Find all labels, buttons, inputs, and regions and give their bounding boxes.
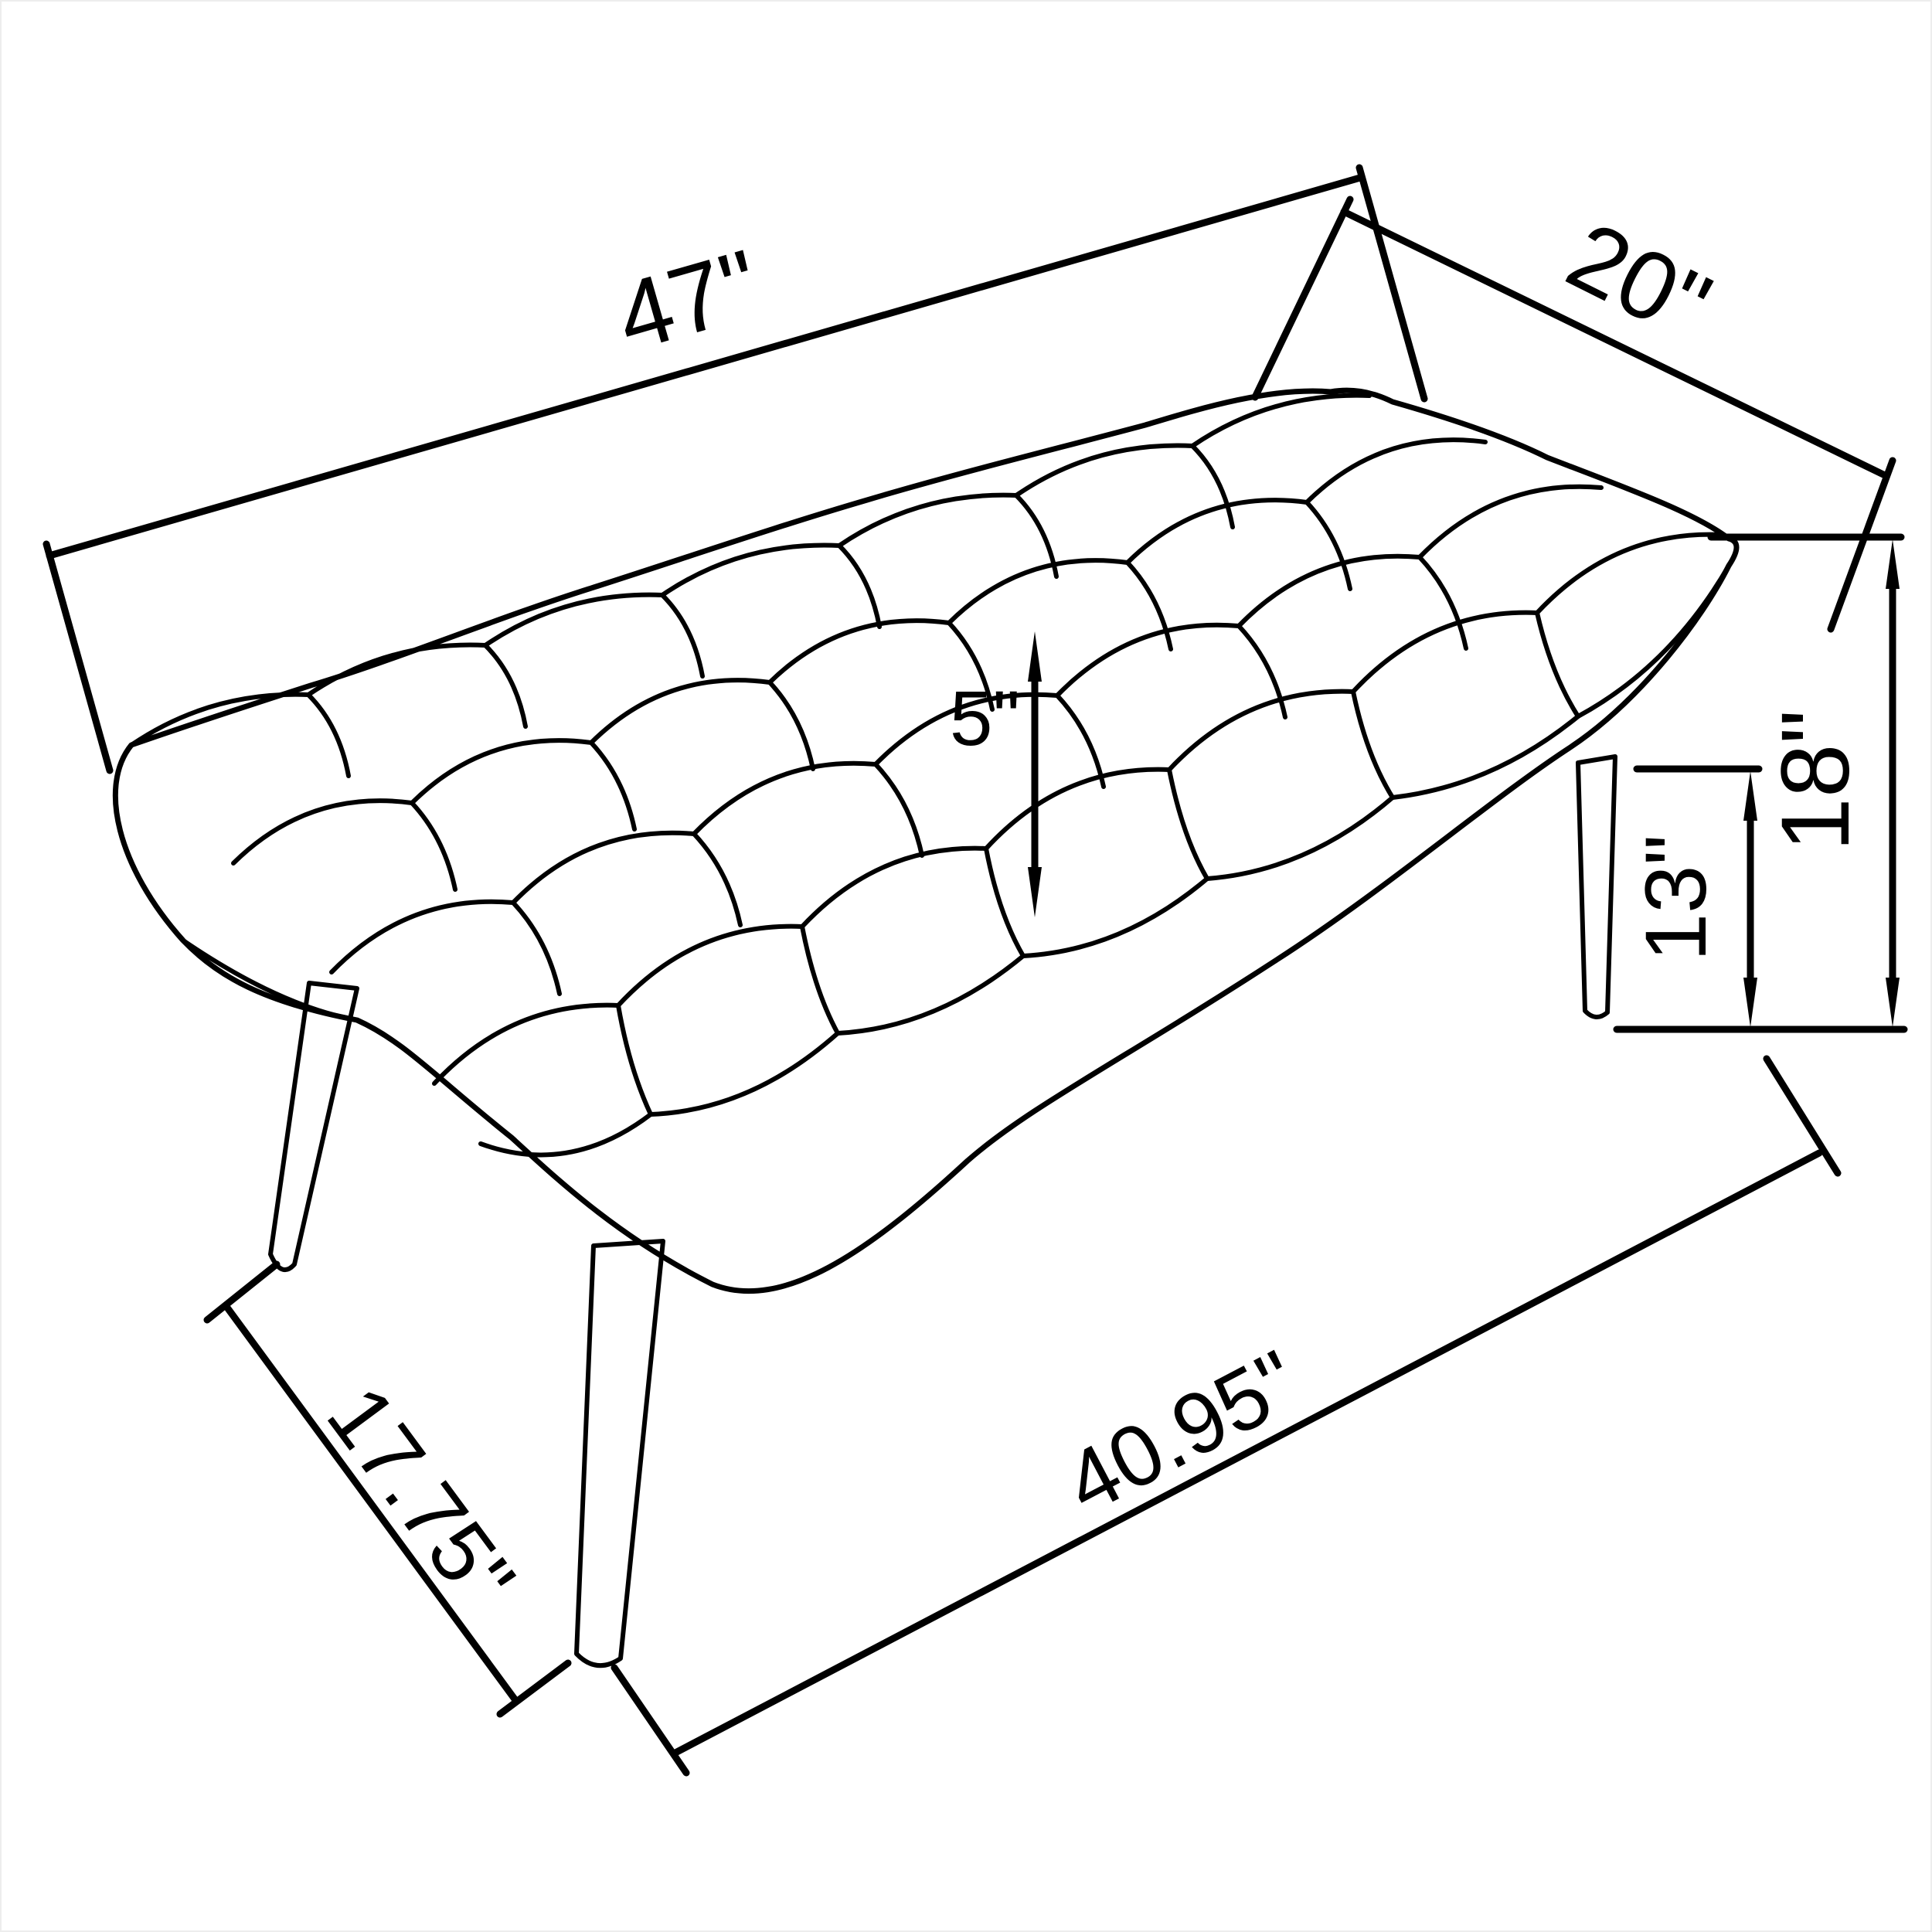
cushion-side-pleats (618, 613, 1578, 1114)
extension-line (1255, 199, 1350, 397)
dim-label-40-95: 40.95" (1049, 1332, 1313, 1532)
bench-cushion (115, 390, 1736, 1291)
cushion-side-folds (183, 566, 1729, 1155)
arrowhead-up (1886, 539, 1900, 589)
extension-line (1767, 1059, 1838, 1173)
bench-dimension-diagram: 47" 20" 5" 13" (2, 2, 1932, 1932)
arrowhead-down (1028, 867, 1042, 917)
extension-line (46, 544, 110, 770)
dimension-leg-span-side: 17.75" (207, 1264, 568, 1714)
bench-leg-front-right (577, 1241, 663, 1665)
dim-label-47: 47" (605, 230, 771, 372)
extension-line (207, 1264, 277, 1320)
dimension-line-40-95 (675, 1153, 1819, 1753)
extension-line (1359, 168, 1424, 399)
bench-leg-back-right (1578, 757, 1615, 1017)
tuft-connectors-row0 (308, 446, 1233, 776)
dim-label-20: 20" (1552, 202, 1726, 361)
bench-leg-front-left (270, 983, 357, 1270)
dimension-leg-span-front: 40.95" (614, 1059, 1838, 1773)
diagram-page: 47" 20" 5" 13" (0, 0, 1932, 1932)
arrowhead-down (1743, 978, 1757, 1027)
cushion-silhouette (115, 390, 1736, 1291)
arrowhead-down (1886, 978, 1900, 1027)
tuft-connectors-row1 (412, 502, 1350, 889)
arrowhead-up (1743, 771, 1757, 821)
dimension-heights: 13" 18" (1617, 537, 1904, 1029)
dim-label-18: 18" (1762, 709, 1869, 851)
dim-label-5: 5" (950, 675, 1020, 762)
arrowhead-up (1028, 631, 1042, 682)
extension-line (1831, 461, 1893, 629)
tuft-row-back (131, 396, 1369, 745)
dim-label-13: 13" (1628, 835, 1724, 961)
dimension-seat-depth: 20" (1255, 199, 1893, 629)
dim-label-17-75: 17.75" (309, 1369, 534, 1625)
extension-line (614, 1668, 686, 1773)
dimension-line-47 (49, 178, 1360, 556)
dimension-cushion-thickness: 5" (950, 631, 1042, 917)
